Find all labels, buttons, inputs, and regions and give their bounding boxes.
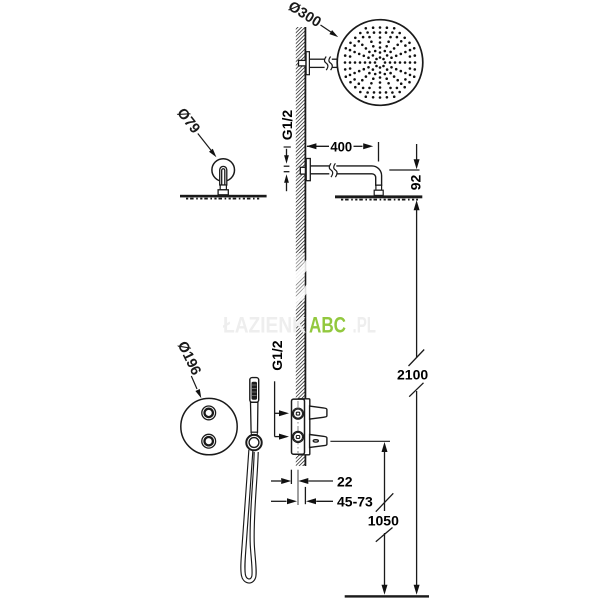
svg-text:1050: 1050 (368, 513, 399, 529)
svg-text:.PL: .PL (353, 312, 377, 337)
svg-text:92: 92 (408, 175, 424, 191)
svg-text:ŁAZIENK: ŁAZIENK (223, 312, 306, 337)
svg-text:45-73: 45-73 (337, 494, 373, 510)
svg-text:400: 400 (330, 138, 352, 154)
svg-text:ABC: ABC (309, 312, 346, 337)
svg-text:22: 22 (337, 473, 353, 489)
svg-text:2100: 2100 (397, 366, 428, 382)
svg-text:G1/2: G1/2 (269, 340, 285, 371)
svg-text:G1/2: G1/2 (279, 110, 295, 141)
